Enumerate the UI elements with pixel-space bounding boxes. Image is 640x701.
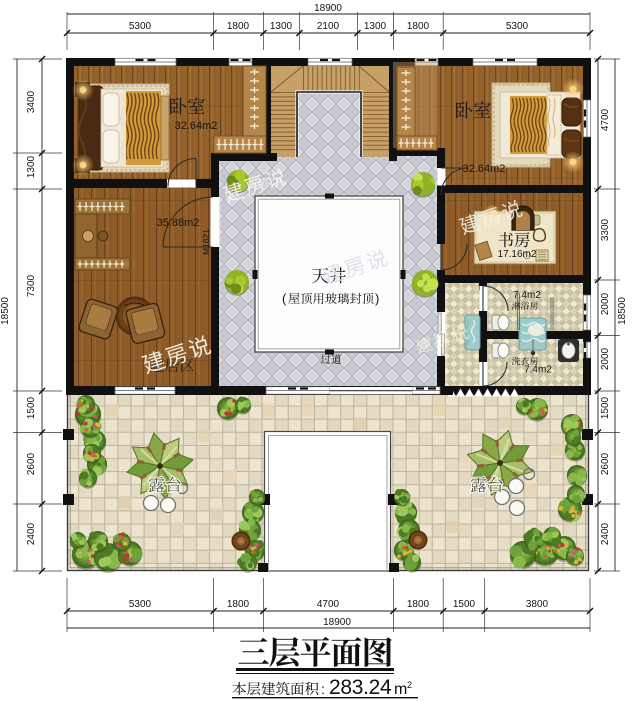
svg-text:283.24: 283.24: [329, 676, 392, 699]
svg-text:7.4m2: 7.4m2: [513, 290, 541, 301]
svg-text:7300: 7300: [26, 274, 37, 297]
svg-text:1500: 1500: [453, 599, 476, 610]
svg-text:M1821: M1821: [201, 229, 211, 255]
svg-text:2600: 2600: [600, 452, 611, 475]
svg-text:18900: 18900: [314, 3, 342, 14]
svg-text:2000: 2000: [600, 292, 611, 315]
svg-text::: :: [321, 681, 325, 697]
svg-text:18500: 18500: [617, 297, 628, 325]
svg-text:18900: 18900: [323, 617, 351, 628]
svg-text:1500: 1500: [26, 396, 37, 419]
svg-text:4700: 4700: [600, 108, 611, 131]
svg-text:1300: 1300: [26, 155, 37, 178]
svg-text:1800: 1800: [227, 599, 250, 610]
svg-text:32.64m2: 32.64m2: [463, 163, 506, 175]
svg-text:m: m: [394, 681, 407, 698]
svg-text:2400: 2400: [600, 522, 611, 545]
svg-text:18500: 18500: [0, 297, 11, 325]
svg-text:2000: 2000: [600, 347, 611, 370]
svg-text:35.88m2: 35.88m2: [157, 217, 200, 229]
svg-text:2100: 2100: [317, 21, 340, 32]
svg-text:5300: 5300: [506, 21, 529, 32]
svg-text:17.16m2: 17.16m2: [498, 249, 537, 260]
svg-text:5300: 5300: [129, 599, 152, 610]
svg-text:1500: 1500: [600, 396, 611, 419]
svg-text:3800: 3800: [526, 599, 549, 610]
svg-text:1300: 1300: [270, 21, 293, 32]
svg-text:3300: 3300: [600, 218, 611, 241]
svg-text:3400: 3400: [26, 90, 37, 113]
svg-text:4700: 4700: [317, 599, 340, 610]
svg-text:(: (: [282, 291, 287, 306]
svg-text:32.64m2: 32.64m2: [175, 120, 218, 132]
svg-text:2: 2: [407, 680, 412, 690]
svg-text:1800: 1800: [407, 599, 430, 610]
svg-text:2600: 2600: [26, 452, 37, 475]
svg-text:1300: 1300: [364, 21, 387, 32]
svg-text:1800: 1800: [407, 21, 430, 32]
svg-text:7.4m2: 7.4m2: [524, 365, 552, 376]
svg-text:): ): [375, 291, 379, 306]
svg-text:1800: 1800: [227, 21, 250, 32]
svg-text:5300: 5300: [129, 21, 152, 32]
svg-text:2400: 2400: [26, 522, 37, 545]
